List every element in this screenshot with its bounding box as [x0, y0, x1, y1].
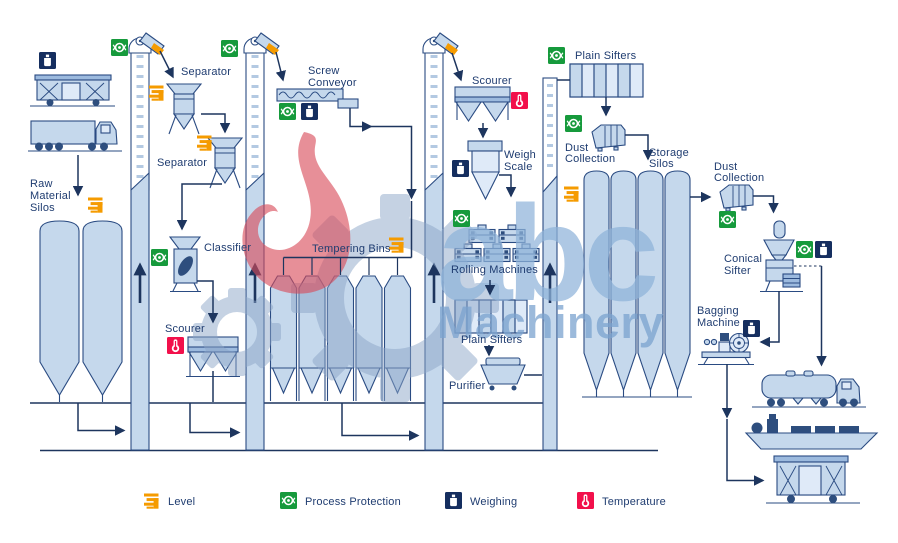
bagging-machine: [698, 333, 754, 365]
weighing-icon: [301, 103, 318, 120]
process-protection-icon: [111, 39, 128, 56]
outbound-tanker-truck: [752, 371, 866, 407]
legend-label-temperature: Temperature: [602, 496, 666, 508]
level-icon: [197, 136, 212, 151]
label-screw-conveyor: Screw: [308, 65, 340, 77]
bucket-elevator-4: [543, 78, 557, 450]
process-protection-icon: [548, 47, 565, 64]
label-scourer-right: Scourer: [472, 75, 512, 87]
label-bagging-machine: Bagging: [697, 305, 739, 317]
weighing-icon: [39, 52, 56, 69]
process-protection-icon: [719, 211, 736, 228]
baselines: [30, 403, 658, 451]
process-flow-diagram: abc Machinery Raw Ma: [0, 0, 898, 543]
label-screw-conveyor: Conveyor: [308, 77, 357, 89]
weigh-scale: [468, 141, 502, 199]
label-tempering-bins: Tempering Bins: [312, 243, 391, 255]
scourer-right: [455, 87, 510, 121]
separator-top-unit: [167, 84, 201, 134]
separator-mid-unit: [208, 138, 242, 188]
label-raw-material-silos: Raw: [30, 178, 53, 190]
process-protection-icon: [565, 115, 582, 132]
process-protection-icon: [280, 492, 297, 509]
process-protection-icon: [279, 103, 296, 120]
label-scourer-left: Scourer: [165, 323, 205, 335]
label-classifier: Classifier: [204, 242, 251, 254]
gear-watermark-small: [193, 288, 281, 376]
scourer-left: [186, 337, 240, 377]
label-bagging-machine: Machine: [697, 317, 740, 329]
purifier: [481, 358, 525, 391]
dust-collector-right: [720, 185, 753, 211]
process-protection-icon: [796, 241, 813, 258]
process-protection-icon: [151, 249, 168, 266]
label-weigh-scale: Scale: [504, 161, 533, 173]
plain-sifters-top: [570, 64, 643, 97]
label-separator-top: Separator: [181, 66, 231, 78]
label-raw-material-silos: Silos: [30, 202, 55, 214]
process-protection-icon: [221, 40, 238, 57]
label-separator-mid: Separator: [157, 157, 207, 169]
level-icon: [144, 494, 159, 509]
weighing-icon: [452, 160, 469, 177]
diagram-canvas: abc Machinery Raw Ma: [0, 0, 898, 543]
label-purifier: Purifier: [449, 380, 486, 392]
rolling-machines: [455, 225, 539, 262]
inbound-railcar: [30, 75, 115, 106]
label-conical-sifter: Conical: [724, 253, 762, 265]
label-plain-sifters-mid: Plain Sifters: [461, 334, 523, 346]
storage-silos: [582, 171, 692, 397]
label-rolling-machines: Rolling Machines: [451, 264, 538, 276]
temperature-icon: [577, 492, 594, 509]
legend-label-weighing: Weighing: [470, 496, 517, 508]
inbound-truck: [28, 121, 122, 151]
label-weigh-scale: Weigh: [504, 149, 536, 161]
outbound-railcar: [766, 456, 860, 503]
level-icon: [564, 187, 579, 202]
dust-collector-top: [592, 125, 625, 151]
temperature-icon: [511, 92, 528, 109]
level-icon: [88, 198, 103, 213]
label-dust-collection-right: Collection: [714, 172, 764, 184]
level-icon: [149, 86, 164, 101]
legend: Level Process Protection Weighing Temper…: [144, 492, 666, 509]
process-protection-icon: [453, 210, 470, 227]
weighing-icon: [743, 320, 760, 337]
outbound-ship: [746, 414, 877, 449]
label-raw-material-silos: Material: [30, 190, 71, 202]
label-plain-sifters-top: Plain Sifters: [575, 50, 637, 62]
classifier: [170, 237, 201, 292]
weighing-icon: [445, 492, 462, 509]
tempering-bins: [271, 276, 411, 401]
weighing-icon: [815, 241, 832, 258]
temperature-icon: [167, 337, 184, 354]
label-dust-collection-top: Collection: [565, 153, 615, 165]
plain-sifters-mid: [455, 300, 527, 333]
legend-label-process-protection: Process Protection: [305, 496, 401, 508]
label-conical-sifter: Sifter: [724, 265, 751, 277]
legend-label-level: Level: [168, 496, 195, 508]
raw-material-silos: [40, 221, 122, 402]
label-storage-silos: Silos: [649, 158, 674, 170]
level-icon: [389, 238, 404, 253]
